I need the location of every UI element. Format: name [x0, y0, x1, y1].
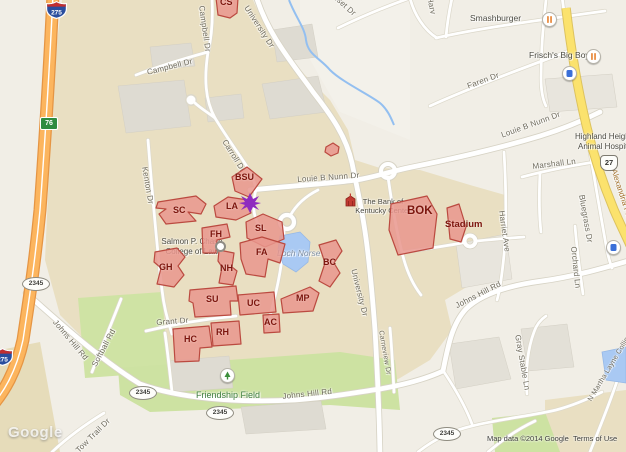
tree-icon-friendship-field[interactable]: [220, 368, 235, 383]
restaurant-icon-smashburger[interactable]: [542, 12, 557, 27]
poi-layer: [0, 0, 626, 452]
terms-of-use-link[interactable]: Terms of Use: [573, 434, 617, 443]
google-watermark[interactable]: Google: [8, 424, 63, 441]
poi-icon-blue-civic[interactable]: [606, 240, 621, 255]
arena-icon-bank-of-kentucky[interactable]: [343, 193, 358, 208]
poi-dot-chase-law[interactable]: [215, 241, 226, 252]
restaurant-icon-frischs[interactable]: [586, 49, 601, 64]
poi-icon-blue-atm[interactable]: [562, 66, 577, 81]
map-canvas[interactable]: University Dr Campbell Dr Campbell Dr Ca…: [0, 0, 626, 452]
map-data-attribution: Map data ©2014 Google: [487, 434, 569, 443]
